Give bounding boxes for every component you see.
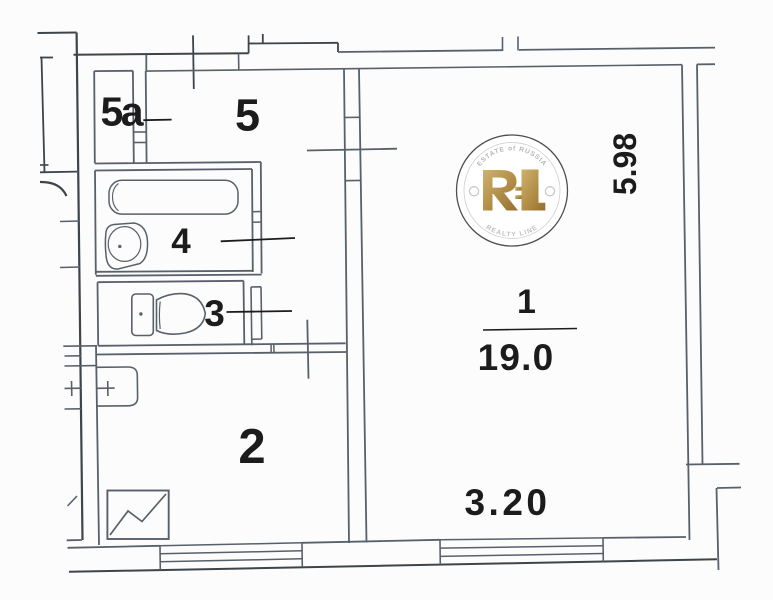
svg-text:3.20: 3.20 (464, 482, 550, 523)
svg-text:19.0: 19.0 (478, 337, 555, 378)
svg-text:5.98: 5.98 (607, 133, 643, 195)
svg-text:4: 4 (171, 222, 191, 261)
svg-text:5: 5 (235, 90, 260, 141)
svg-text:3: 3 (204, 293, 225, 334)
svg-text:1: 1 (517, 283, 536, 321)
svg-text:2: 2 (238, 420, 265, 474)
svg-text:5a: 5a (101, 89, 145, 135)
